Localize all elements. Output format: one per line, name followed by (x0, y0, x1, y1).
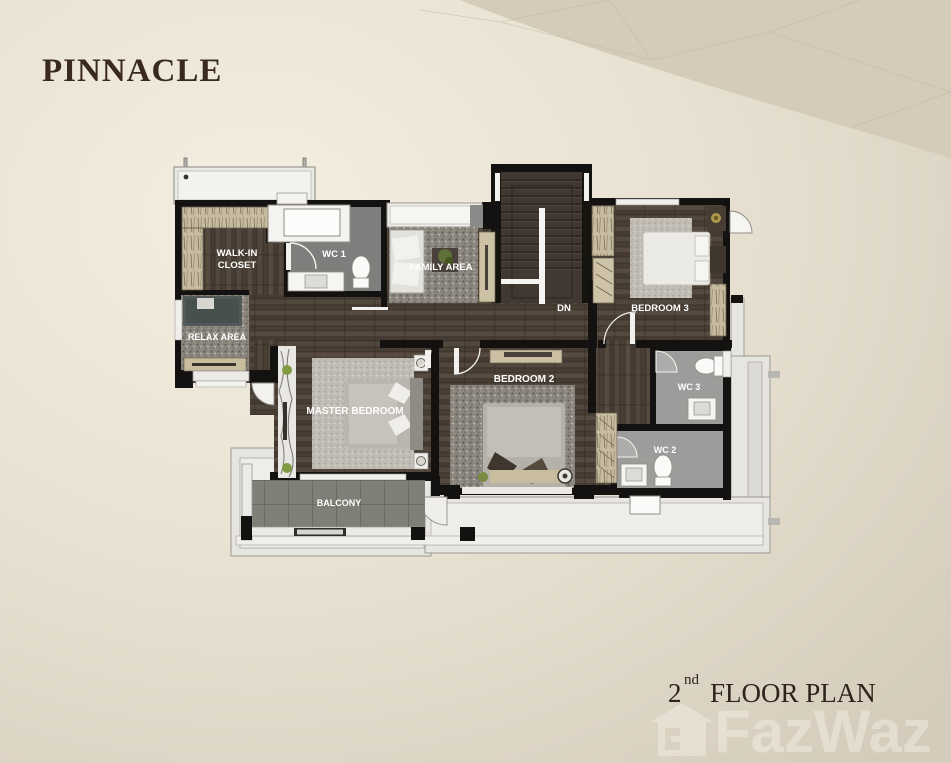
svg-text:RELAX AREA: RELAX AREA (188, 332, 247, 342)
svg-text:WALK-IN: WALK-IN (217, 248, 258, 259)
svg-text:WC 2: WC 2 (654, 445, 677, 455)
svg-text:WC 3: WC 3 (678, 382, 701, 392)
svg-text:FAMILY AREA: FAMILY AREA (410, 262, 473, 273)
svg-text:BEDROOM 2: BEDROOM 2 (494, 374, 555, 385)
svg-text:BEDROOM 3: BEDROOM 3 (631, 303, 689, 314)
svg-text:FazWaz: FazWaz (714, 698, 932, 763)
svg-text:BALCONY: BALCONY (317, 498, 362, 508)
svg-text:CLOSET: CLOSET (218, 260, 257, 271)
svg-text:2: 2 (668, 678, 682, 708)
svg-text:WC 1: WC 1 (322, 249, 346, 260)
svg-text:PINNACLE: PINNACLE (42, 53, 222, 89)
svg-text:DN: DN (557, 303, 571, 314)
svg-text:nd: nd (684, 672, 700, 688)
svg-text:MASTER BEDROOM: MASTER BEDROOM (306, 406, 403, 417)
